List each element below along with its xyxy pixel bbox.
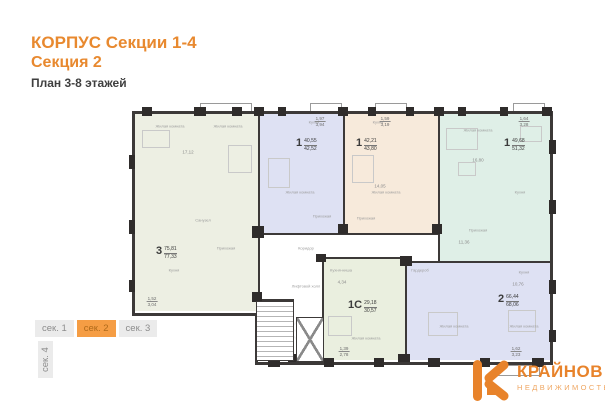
wall-pier <box>549 280 556 294</box>
room-name-label: Жилая комната <box>372 190 401 195</box>
elevator-shaft <box>296 317 324 362</box>
unit-areas: 40,5542,52 <box>304 138 317 152</box>
unit-number: 2 <box>498 294 504 305</box>
unit-areas: 29,1830,57 <box>364 300 377 314</box>
wall-pier <box>500 107 508 116</box>
room-area-label: 17,12 <box>182 150 193 155</box>
floor-plan: ✳375,8177,33140,5542,52142,2143,80149,68… <box>128 100 555 378</box>
floors-subtitle: План 3-8 этажей <box>31 76 197 90</box>
unit-number: 1 <box>296 138 302 149</box>
building-title: КОРПУС Секции 1-4 <box>31 32 197 53</box>
room-name-label: Жилая комната <box>510 324 539 329</box>
wall-pier <box>142 107 152 116</box>
balcony-area-fraction: 1,973,94 <box>315 116 326 127</box>
wall-segment <box>343 113 345 235</box>
wall-pier <box>338 224 348 234</box>
room-name-label: Жилая комната <box>214 124 243 129</box>
room-name-label: Прихожая <box>217 246 236 251</box>
apt-1-beige-label: 142,2143,80 <box>356 138 377 152</box>
wall-segment <box>259 233 440 235</box>
room-area-label: 10,76 <box>512 282 523 287</box>
room-area-label: 11,36 <box>459 240 470 245</box>
unit-areas: 75,8177,33 <box>164 246 177 260</box>
room-name-label: Прихожая <box>469 228 488 233</box>
furniture-outline <box>268 158 290 188</box>
furniture-outline <box>328 316 352 336</box>
unit-areas: 66,4468,06 <box>506 294 519 308</box>
brand-k-house-icon <box>473 360 511 401</box>
room-name-label: Прихожая <box>357 216 376 221</box>
wall-pier <box>542 107 552 116</box>
balcony-area-fraction: 1,523,04 <box>147 296 158 307</box>
wall-pier <box>549 200 556 214</box>
unit-number: 1 <box>356 138 362 149</box>
wall-pier <box>400 256 412 266</box>
wall-pier <box>316 254 326 262</box>
balcony-area-fraction: 1,593,19 <box>380 116 391 127</box>
wall-pier <box>432 224 442 234</box>
wall-pier <box>406 107 414 116</box>
wall-pier <box>428 358 440 367</box>
furniture-outline <box>508 310 536 332</box>
apt-2-lavender-label: 266,4468,06 <box>498 294 519 308</box>
tab-section-1[interactable]: сек. 1 <box>35 320 74 337</box>
wall-pier <box>129 155 135 169</box>
room-name-label: Кухня <box>519 270 530 275</box>
wall-pier <box>374 358 384 367</box>
room-name-label: Жилая комната <box>156 124 185 129</box>
balcony-area-fraction: 1,623,23 <box>511 346 522 357</box>
wall-segment <box>322 257 407 259</box>
wall-pier <box>252 226 264 238</box>
room-name-label: Гардероб <box>411 268 429 273</box>
wall-pier <box>232 107 242 116</box>
room-name-label: Прихожая <box>313 214 332 219</box>
page-header: КОРПУС Секции 1-4 Секция 2 План 3-8 этаж… <box>31 32 197 90</box>
unit-number: 1 <box>504 138 510 149</box>
stairwell <box>256 301 294 361</box>
tab-section-3[interactable]: сек. 3 <box>119 320 158 337</box>
wall-pier <box>398 354 410 362</box>
room-name-label: Кухня <box>169 268 180 273</box>
room-name-label: Жилая комната <box>440 324 469 329</box>
wall-pier <box>434 107 444 116</box>
furniture-outline <box>142 130 170 148</box>
unit-areas: 49,6851,32 <box>512 138 525 152</box>
wall-segment <box>132 313 258 316</box>
apt-3-rooms-label: 375,8177,33 <box>156 246 177 260</box>
room-name-label: Жилая комната <box>352 336 381 341</box>
wall-pier <box>368 107 376 116</box>
wall-segment <box>258 113 260 313</box>
furniture-outline <box>458 162 476 176</box>
wall-segment <box>438 113 440 263</box>
unit-areas: 42,2143,80 <box>364 138 377 152</box>
wall-pier <box>129 280 135 292</box>
room-name-label: Кухня-ниша <box>330 268 352 273</box>
balcony-area-fraction: 1,392,78 <box>339 346 350 357</box>
furniture-outline <box>228 145 252 173</box>
room-name-label: Жилая комната <box>286 190 315 195</box>
wall-pier <box>458 107 466 116</box>
wall-pier <box>194 107 206 116</box>
room-area-label: 4,34 <box>338 280 347 285</box>
wall-pier <box>278 107 286 116</box>
balcony-area-fraction: 1,643,28 <box>519 116 530 127</box>
wall-segment <box>405 261 553 263</box>
logo-tagline: НЕДВИЖИМОСТЬ <box>517 383 605 392</box>
logo-brand-name: КРАЙНОВ <box>517 363 605 380</box>
wall-pier <box>549 330 556 342</box>
apt-1c-studio-label: 1С29,1830,57 <box>348 300 377 314</box>
room-name-label: Санузел <box>195 218 211 223</box>
room-area-label: 14,05 <box>374 184 385 189</box>
wall-pier <box>549 140 556 154</box>
room-name-label: Кухня <box>515 190 526 195</box>
wall-pier <box>338 107 348 116</box>
section-tabs: сек. 1 сек. 2 сек. 3 <box>35 320 160 337</box>
section-title: Секция 2 <box>31 53 197 73</box>
furniture-outline <box>352 155 374 183</box>
unit-number: 3 <box>156 246 162 257</box>
tab-section-4[interactable]: сек. 4 <box>38 341 53 378</box>
wall-pier <box>129 220 135 234</box>
room-name-label: Лифтовой холл <box>292 284 320 289</box>
wall-pier <box>324 358 334 367</box>
room-name-label: Коридор <box>298 246 314 251</box>
room-area-label: 16,80 <box>472 158 483 163</box>
tab-section-2[interactable]: сек. 2 <box>77 320 116 337</box>
apt-1-mint-label: 149,6851,32 <box>504 138 525 152</box>
apt-1-lavender-label: 140,5542,52 <box>296 138 317 152</box>
wall-pier <box>254 107 264 116</box>
agency-logo: КРАЙНОВ НЕДВИЖИМОСТЬ <box>473 360 605 401</box>
room-name-label: Жилая комната <box>464 128 493 133</box>
unit-number: 1С <box>348 300 362 311</box>
wall-segment <box>405 261 407 362</box>
logo-text: КРАЙНОВ НЕДВИЖИМОСТЬ <box>517 363 605 392</box>
